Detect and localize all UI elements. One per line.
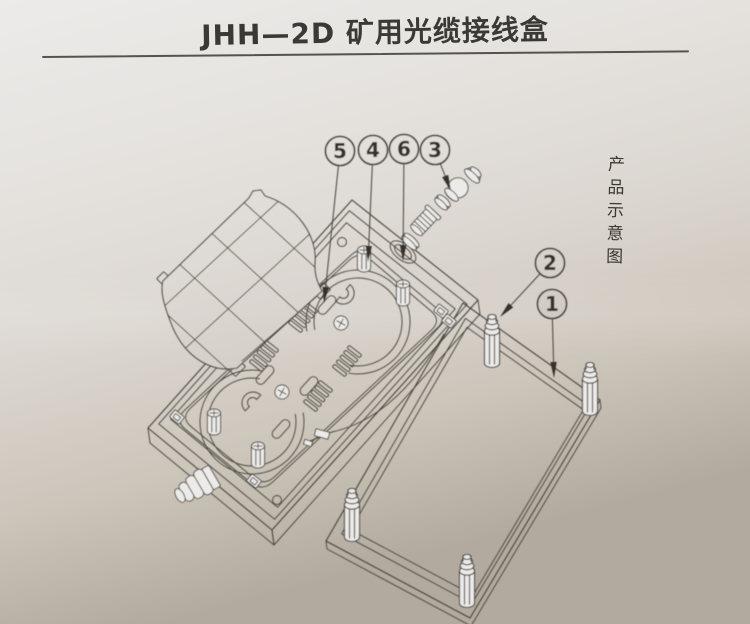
corner-standoff-post bbox=[460, 555, 475, 608]
corner-standoff-post bbox=[485, 315, 500, 368]
standoff-screw bbox=[208, 409, 221, 435]
exploded-assembly-drawing: 123456 bbox=[0, 0, 750, 624]
callout-number: 6 bbox=[397, 137, 411, 161]
side-caption: 产品示意图 bbox=[600, 155, 627, 270]
standoff-screw bbox=[252, 442, 265, 468]
paper-glare bbox=[0, 272, 750, 357]
standoff-screw bbox=[397, 280, 410, 306]
tray-screw bbox=[275, 385, 289, 399]
callout-number: 2 bbox=[543, 251, 557, 275]
corner-standoff-post bbox=[583, 363, 598, 416]
corner-standoff-post bbox=[345, 489, 360, 542]
callout-number: 4 bbox=[366, 138, 380, 162]
callout-number: 3 bbox=[428, 138, 442, 162]
callout-number: 1 bbox=[545, 292, 559, 316]
callout-number: 5 bbox=[333, 139, 347, 163]
tray-screw bbox=[334, 316, 348, 330]
photographed-page: 123456 JHH—2D 矿用光缆接线盒 产品示意图 bbox=[0, 0, 750, 624]
